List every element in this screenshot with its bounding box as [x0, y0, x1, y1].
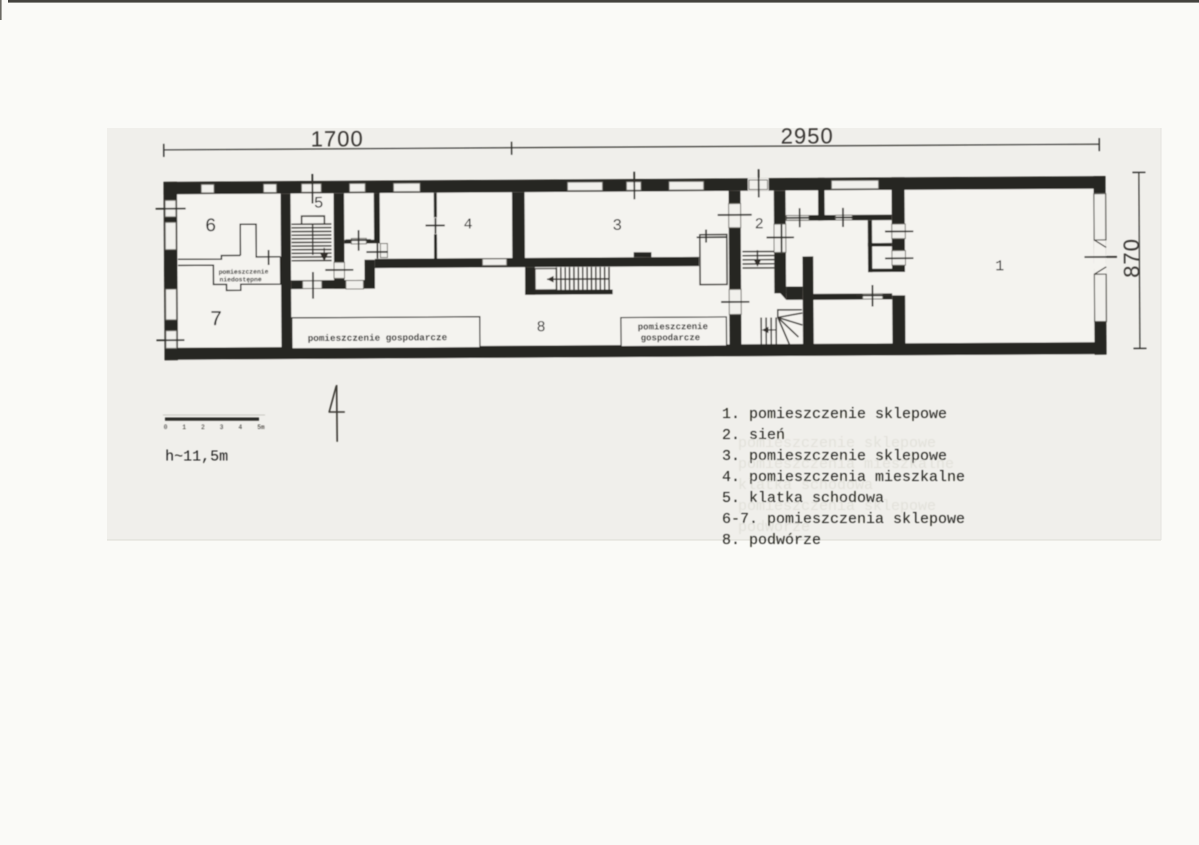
svg-text:3: 3	[612, 217, 622, 235]
svg-text:1. pomieszczenie sklepowe: 1. pomieszczenie sklepowe	[722, 406, 947, 423]
svg-text:2950: 2950	[781, 123, 834, 148]
svg-text:8: 8	[537, 319, 546, 336]
svg-text:7: 7	[210, 309, 223, 332]
svg-text:8. podwórze: 8. podwórze	[722, 532, 821, 549]
svg-text:3. pomieszczenie sklepowe: 3. pomieszczenie sklepowe	[722, 448, 947, 465]
svg-text:5: 5	[314, 194, 324, 212]
svg-text:h~11,5m: h~11,5m	[165, 449, 228, 466]
svg-text:1: 1	[182, 424, 186, 431]
svg-text:2: 2	[201, 424, 205, 431]
svg-text:5m: 5m	[257, 424, 265, 431]
svg-text:870: 870	[1119, 238, 1144, 278]
svg-text:3: 3	[220, 424, 224, 431]
svg-text:pomieszczenie gospodarcze: pomieszczenie gospodarcze	[308, 332, 448, 344]
svg-text:4. pomieszczenia mieszkalne: 4. pomieszczenia mieszkalne	[722, 469, 965, 486]
svg-text:5. klatka schodowa: 5. klatka schodowa	[722, 490, 884, 507]
svg-text:pomieszczenie: pomieszczenie	[638, 322, 708, 332]
svg-text:4: 4	[464, 216, 473, 233]
svg-text:0: 0	[164, 424, 168, 431]
svg-text:1700: 1700	[311, 126, 364, 151]
svg-text:pomieszczenie: pomieszczenie	[219, 269, 269, 276]
svg-text:niedostępne: niedostępne	[219, 276, 261, 283]
svg-text:1: 1	[995, 258, 1004, 275]
svg-text:6-7. pomieszczenia sklepowe: 6-7. pomieszczenia sklepowe	[722, 511, 965, 528]
svg-text:4: 4	[238, 424, 242, 431]
svg-text:gospodarcze: gospodarcze	[641, 333, 700, 343]
svg-text:2. sień: 2. sień	[722, 427, 785, 444]
svg-text:6: 6	[205, 215, 217, 237]
svg-text:2: 2	[755, 216, 764, 233]
